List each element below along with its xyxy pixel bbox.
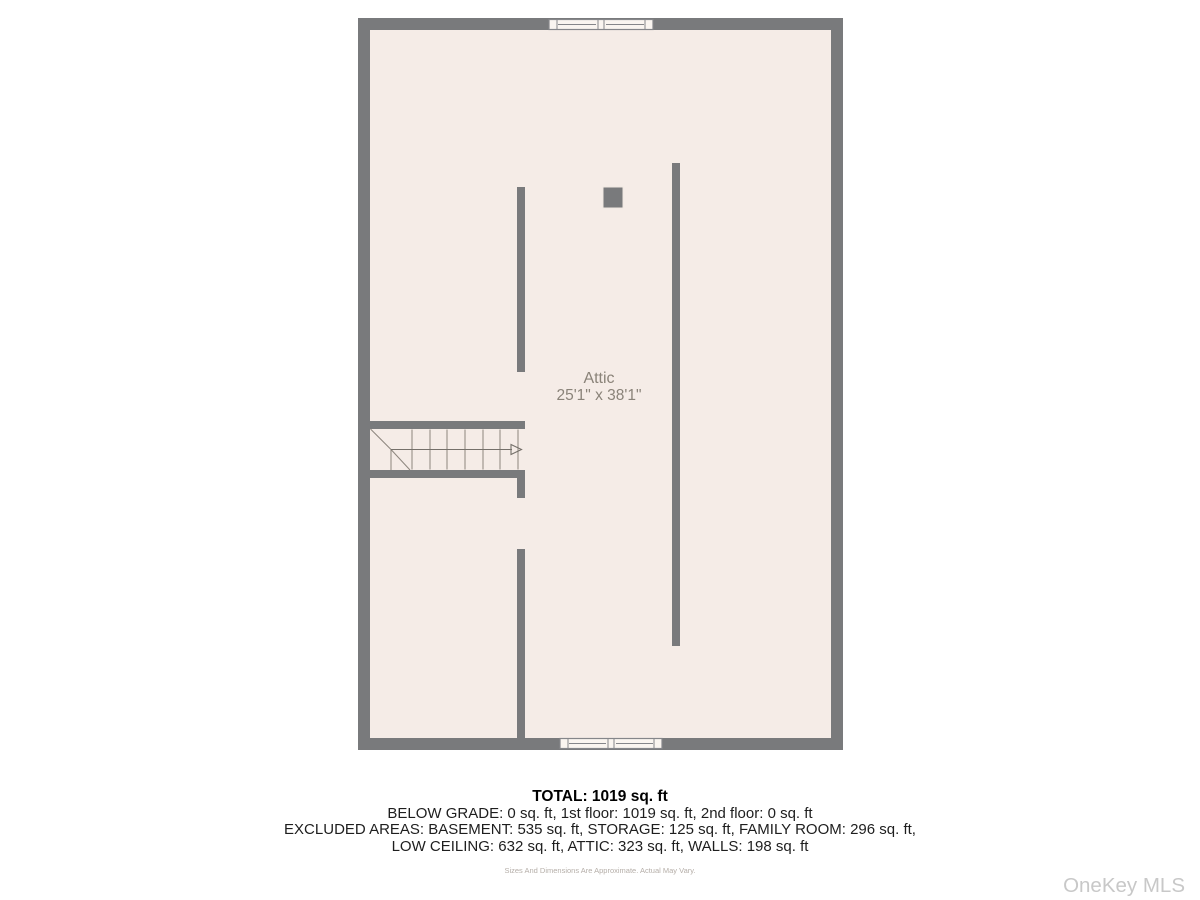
interior-wall-center-long bbox=[672, 163, 680, 646]
floor-plan bbox=[0, 0, 1200, 900]
chimney bbox=[603, 187, 623, 208]
room-label-block: Attic 25'1" x 38'1" bbox=[449, 371, 749, 404]
total-area-text: TOTAL: 1019 sq. ft bbox=[0, 789, 1200, 806]
area-summary: TOTAL: 1019 sq. ft BELOW GRADE: 0 sq. ft… bbox=[0, 789, 1200, 855]
watermark: OneKey MLS bbox=[1063, 874, 1185, 898]
stair-wall-top bbox=[370, 421, 525, 429]
area-breakdown-line-3: LOW CEILING: 632 sq. ft, ATTIC: 323 sq. … bbox=[0, 839, 1200, 856]
room-dimensions: 25'1" x 38'1" bbox=[449, 388, 749, 405]
stair-wall-bottom bbox=[370, 470, 525, 478]
top-window bbox=[549, 20, 653, 30]
interior-wall-stub bbox=[517, 478, 525, 498]
area-breakdown-line-2: EXCLUDED AREAS: BASEMENT: 535 sq. ft, ST… bbox=[0, 822, 1200, 839]
bottom-window bbox=[560, 739, 662, 749]
area-breakdown-line-1: BELOW GRADE: 0 sq. ft, 1st floor: 1019 s… bbox=[0, 806, 1200, 823]
room-name: Attic bbox=[449, 371, 749, 388]
floor-plan-page: Attic 25'1" x 38'1" TOTAL: 1019 sq. ft B… bbox=[0, 0, 1200, 900]
interior-wall-lower-left bbox=[517, 549, 525, 738]
interior-wall-upper-left bbox=[517, 187, 525, 372]
disclaimer-text: Sizes And Dimensions Are Approximate. Ac… bbox=[0, 866, 1200, 875]
